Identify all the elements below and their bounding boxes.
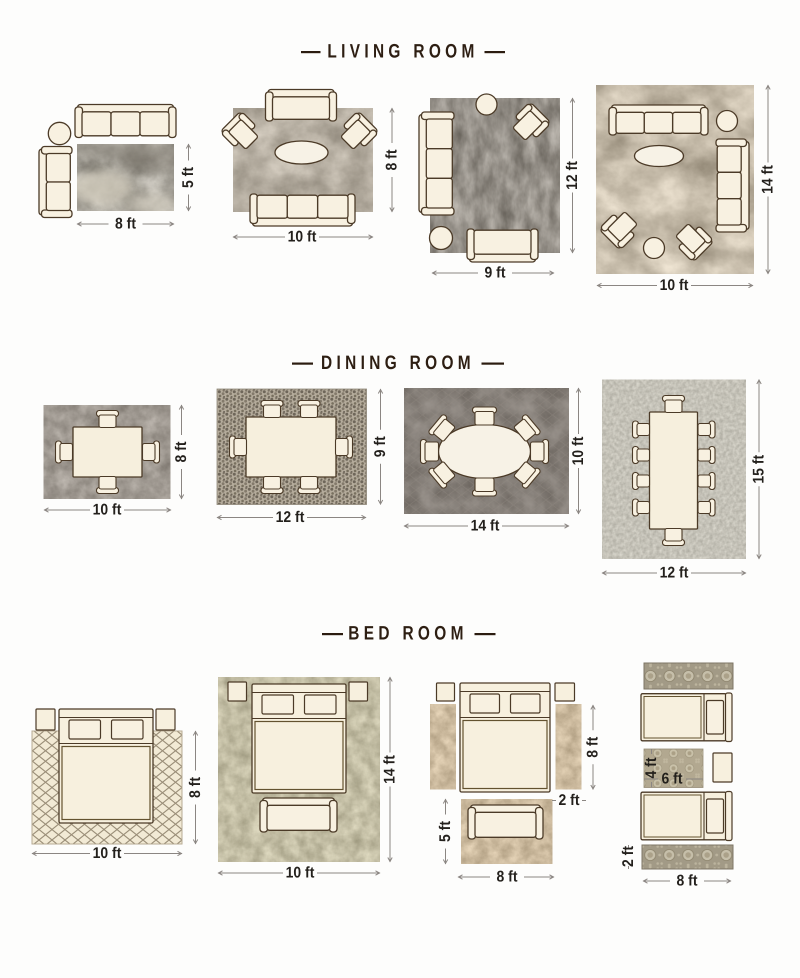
svg-text:8 ft: 8 ft <box>115 216 136 233</box>
svg-text:15 ft: 15 ft <box>751 455 768 484</box>
svg-text:8 ft: 8 ft <box>187 777 204 798</box>
svg-text:10 ft: 10 ft <box>93 845 122 862</box>
svg-text:5 ft: 5 ft <box>437 821 454 842</box>
svg-text:2 ft: 2 ft <box>620 846 637 867</box>
svg-text:12 ft: 12 ft <box>564 161 581 190</box>
svg-text:10 ft: 10 ft <box>570 437 587 466</box>
svg-text:8 ft: 8 ft <box>497 869 518 886</box>
svg-text:10 ft: 10 ft <box>660 277 689 294</box>
svg-text:LIVING ROOM: LIVING ROOM <box>327 41 478 63</box>
svg-text:10 ft: 10 ft <box>286 865 315 882</box>
svg-text:2 ft: 2 ft <box>559 792 580 809</box>
svg-text:8 ft: 8 ft <box>585 737 602 758</box>
svg-text:10 ft: 10 ft <box>93 502 122 519</box>
svg-text:14 ft: 14 ft <box>760 165 777 194</box>
svg-text:9 ft: 9 ft <box>372 436 389 457</box>
svg-text:14 ft: 14 ft <box>471 518 500 535</box>
svg-text:5 ft: 5 ft <box>180 167 197 188</box>
svg-text:9 ft: 9 ft <box>485 265 506 282</box>
svg-text:8 ft: 8 ft <box>677 873 698 890</box>
svg-text:4 ft: 4 ft <box>643 758 660 779</box>
svg-text:6 ft: 6 ft <box>662 771 683 788</box>
svg-text:12 ft: 12 ft <box>276 509 305 526</box>
svg-text:BED ROOM: BED ROOM <box>348 623 467 645</box>
svg-text:14 ft: 14 ft <box>382 755 399 784</box>
svg-text:8 ft: 8 ft <box>173 442 190 463</box>
svg-text:DINING ROOM: DINING ROOM <box>321 352 475 374</box>
svg-text:8 ft: 8 ft <box>384 150 401 171</box>
svg-text:10 ft: 10 ft <box>288 229 317 246</box>
svg-text:12 ft: 12 ft <box>660 565 689 582</box>
